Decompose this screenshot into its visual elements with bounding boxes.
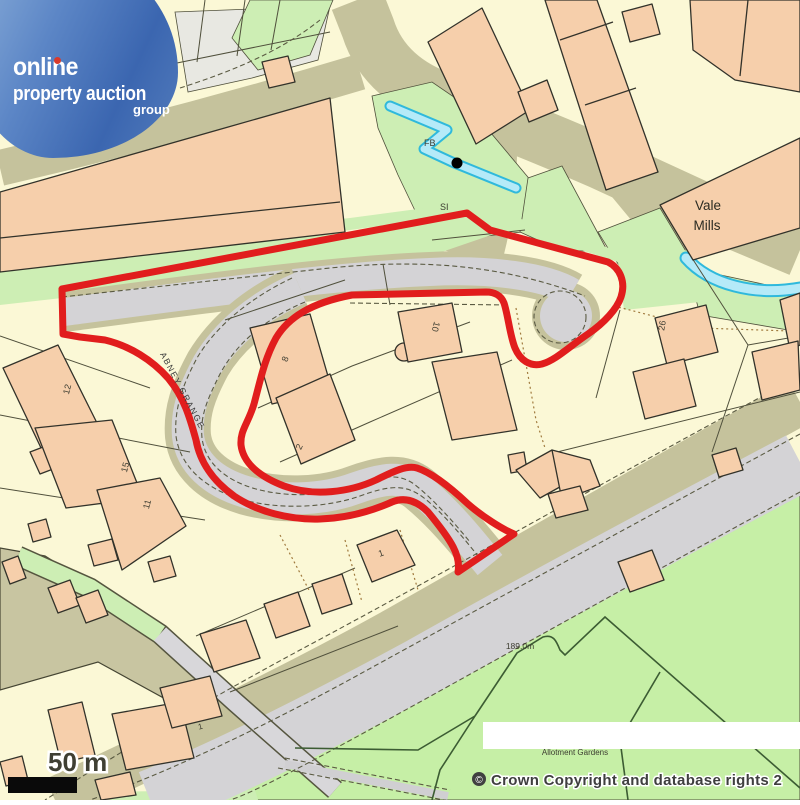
label-mills: Mills [694, 218, 721, 233]
map-viewport: FB SI Vale Mills ABNEY GRANGE 189.0m All… [0, 0, 800, 800]
os-map: FB SI Vale Mills ABNEY GRANGE 189.0m All… [0, 0, 800, 800]
copyright-symbol: © [475, 775, 483, 786]
label-vale: Vale [695, 198, 721, 213]
label-house-26: 26 [656, 320, 668, 332]
whiteout-box [483, 722, 800, 749]
building-10 [398, 303, 462, 362]
scale-label: 50 m [48, 747, 107, 777]
label-spot-height: 189.0m [506, 641, 534, 651]
label-si: SI [440, 202, 449, 212]
copyright-text: Crown Copyright and database rights 2 [491, 772, 782, 789]
label-allotment: Allotment Gardens [542, 748, 608, 757]
label-fb: FB [424, 138, 436, 148]
copyright-notice: © Crown Copyright and database rights 2 [472, 772, 782, 789]
spot-marker-dot [452, 158, 463, 169]
scale-bar-block [8, 777, 77, 793]
